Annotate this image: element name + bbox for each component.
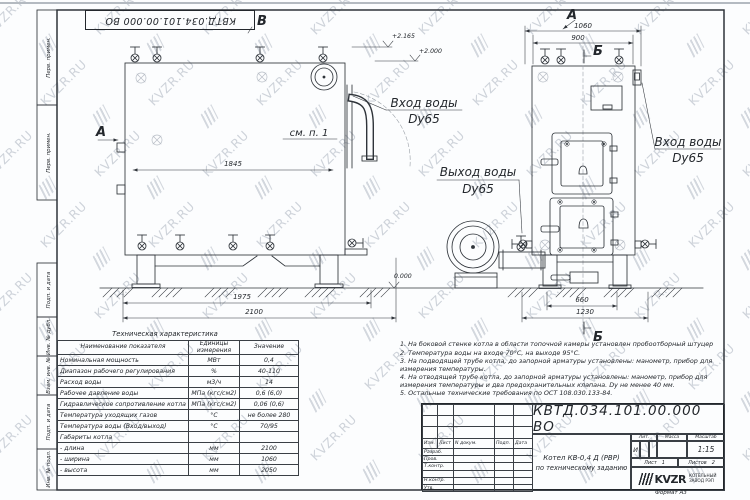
valve-icon (615, 49, 624, 64)
valve-icon (256, 47, 265, 62)
paper-top-edge (0, 2, 750, 4)
drain-valve-icon (176, 235, 185, 250)
table-row: - высотамм2050 (58, 465, 299, 476)
level-0000: 0.000 (394, 273, 412, 280)
strip-label: Подп. и дата (46, 272, 52, 309)
top-stamp: КВТД.034.101.00.000 ВО (85, 10, 255, 30)
lit-cell-2 (640, 441, 649, 458)
table-row: Температура воды (Вход/выход)°С70/95 (58, 421, 299, 432)
valve-icon (153, 47, 162, 62)
inlet-water-dy: Dy65 (408, 112, 440, 126)
table-row: - ширинамм1060 (58, 454, 299, 465)
company-logo: KVZR КОТЕЛЬНЫЙ ЗАВОД РЭП (631, 467, 725, 491)
table-row: Габариты котла (58, 432, 299, 443)
valve-icon (557, 49, 566, 64)
pipe-labels: Вход воды Dy65 Выход воды Dy65 (353, 96, 522, 233)
valve-icon (319, 47, 328, 62)
strip-label: Инв. № подл. (46, 450, 52, 487)
scale-header: Масштаб (687, 434, 725, 441)
technical-notes: 1. На боковой стенке котла в области топ… (400, 341, 722, 399)
kvzr-logo-icon (638, 473, 653, 485)
kvzr-logo-subtitle: КОТЕЛЬНЫЙ ЗАВОД РЭП (689, 474, 716, 484)
drain-valve-icon (641, 240, 656, 249)
top-stamp-number: КВТД.034.101.00.000 ВО (105, 15, 236, 26)
bolt-icon (592, 200, 596, 204)
tech-table-title: Техническая характеристика (80, 330, 250, 338)
drawing-sheet: KVZR.RUKVZR.RUKVZR.RUKVZR.RUKVZR.RUKVZR.… (0, 0, 750, 500)
strip-label: Инв. № дубл. (46, 318, 52, 355)
bolt-icon (592, 248, 596, 252)
sheets-cell: Листов2 (678, 458, 725, 467)
outlet-water-label: Выход воды (440, 165, 516, 179)
drain-valve-icon (229, 235, 238, 250)
front-view-labels: А Б Б Вход воды Dy65 (563, 8, 721, 345)
mass-header: Масса (657, 434, 687, 441)
bolt-icon (565, 142, 569, 146)
dim-1975: 1975 (233, 293, 251, 301)
table-row: - длинамм2100 (58, 443, 299, 454)
dim-1230: 1230 (576, 308, 594, 316)
table-row: Номинальная мощностьМВт0,4 (58, 355, 299, 366)
boiler-side-view (117, 47, 410, 288)
table-row: Диапазон рабочего регулирования%40-110 (58, 366, 299, 377)
note-item: 5. Остальные технические требования по О… (400, 390, 722, 398)
scale-value: 1:15 (687, 441, 725, 458)
note-item: 2. Температура воды на входе 70°С, на вы… (400, 350, 722, 358)
boiler-front-view (512, 46, 656, 334)
sheet-cell: Лист1 (631, 458, 678, 467)
dim-1845: 1845 (224, 160, 242, 168)
table-row: Рабочее давление водыМПа (кгс/см2)0,6 (6… (58, 388, 299, 399)
drawing-title: Котел КВ-0,4 Д (РВР) по техническому зад… (532, 434, 631, 491)
drawing-title-line1: Котел КВ-0,4 Д (РВР) (543, 454, 619, 462)
dim-660: 660 (575, 296, 589, 304)
ground-line (100, 288, 703, 297)
center-mark-icon (538, 72, 548, 82)
see-note-1: см. п. 1 (290, 128, 329, 139)
inlet-water-label: Вход воды (391, 96, 458, 110)
strip-label: Подп. и дата (46, 404, 52, 441)
section-mark-b-top: Б (593, 44, 603, 59)
center-mark-icon (540, 240, 550, 250)
front-view-dimensions: 1060 900 660 1230 (522, 22, 648, 322)
outlet-water-dy: Dy65 (462, 182, 494, 196)
dim-1060: 1060 (574, 22, 592, 30)
blower-fan (447, 221, 545, 288)
view-labels: В А см. п. 1 (95, 14, 337, 140)
drain-valve-icon (348, 239, 363, 248)
col-header-name: Наименование показателя (58, 341, 189, 355)
bolt-icon (558, 248, 562, 252)
col-header-units: Единицы измерения (188, 341, 239, 355)
center-mark-icon (257, 72, 267, 82)
lit-value: И (631, 441, 640, 458)
bolt-icon (602, 142, 606, 146)
strip-label: Перв. примен. (46, 132, 52, 172)
kvzr-logo-text: KVZR (655, 473, 686, 486)
table-row: Расход водым3/ч14 (58, 377, 299, 388)
tech-table: Наименование показателя Единицы измерени… (57, 340, 299, 476)
center-mark-icon (613, 72, 623, 82)
level-marks: +2.165 +2.000 0.000 (352, 33, 442, 288)
strip-label: Взам. инв. № (46, 357, 52, 394)
dim-900: 900 (571, 34, 585, 42)
center-mark-icon (152, 135, 162, 145)
drain-valve-icon (512, 240, 527, 249)
level-2000: +2.000 (419, 48, 442, 55)
inlet-water-right-label: Вход воды (655, 135, 722, 149)
duct-valve-icon (517, 236, 526, 251)
table-row: Гидравлическое сопротивление котлаМПа (к… (58, 399, 299, 410)
valve-icon (541, 49, 550, 64)
section-arrow-a: А (95, 125, 106, 140)
drain-valve-icon (138, 235, 147, 250)
note-item: 4. На отводящей трубе котла, до запорной… (400, 374, 722, 389)
drain-valve-icon (266, 235, 275, 250)
col-header-value: Значение (239, 341, 298, 355)
dim-2100: 2100 (245, 308, 263, 316)
center-mark-icon (136, 73, 146, 83)
bolt-icon (558, 200, 562, 204)
strip-label: Перв. примен. (46, 37, 52, 77)
title-block: КВТД.034.101.00.000 ВО Изм.Лист N докум.… (421, 403, 724, 490)
view-arrow-b: В (257, 14, 267, 29)
note-item: 3. На подводящей трубе котла, до запорно… (400, 358, 722, 373)
table-row: Температура уходящих газов°Сне более 280 (58, 410, 299, 421)
inlet-water-right-dy: Dy65 (672, 151, 704, 165)
lit-cell-3 (649, 441, 657, 458)
doc-number: КВТД.034.101.00.000 ВО (532, 404, 725, 434)
revision-table: Изм.Лист N докум.Подп. Дата Разраб. Пров… (422, 404, 533, 492)
valve-icon (131, 47, 140, 62)
mass-value (657, 441, 687, 458)
level-2165: +2.165 (392, 33, 415, 40)
view-arrow-a: А (566, 8, 577, 23)
lit-header: Лит. (631, 434, 657, 441)
note-item: 1. На боковой стенке котла в области топ… (400, 341, 722, 349)
drawing-title-line2: по техническому заданию (536, 464, 628, 472)
format-note: Формат А3 (655, 490, 687, 496)
